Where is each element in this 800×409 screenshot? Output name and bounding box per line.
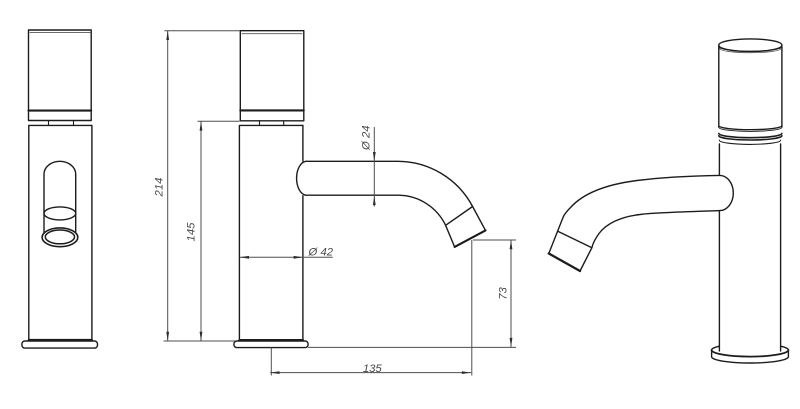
svg-text:214: 214 xyxy=(153,178,165,198)
svg-text:73: 73 xyxy=(498,287,510,300)
svg-text:Ø 42: Ø 42 xyxy=(308,246,334,258)
svg-text:135: 135 xyxy=(363,363,383,375)
svg-text:Ø 24: Ø 24 xyxy=(361,125,373,151)
svg-text:145: 145 xyxy=(185,222,197,242)
